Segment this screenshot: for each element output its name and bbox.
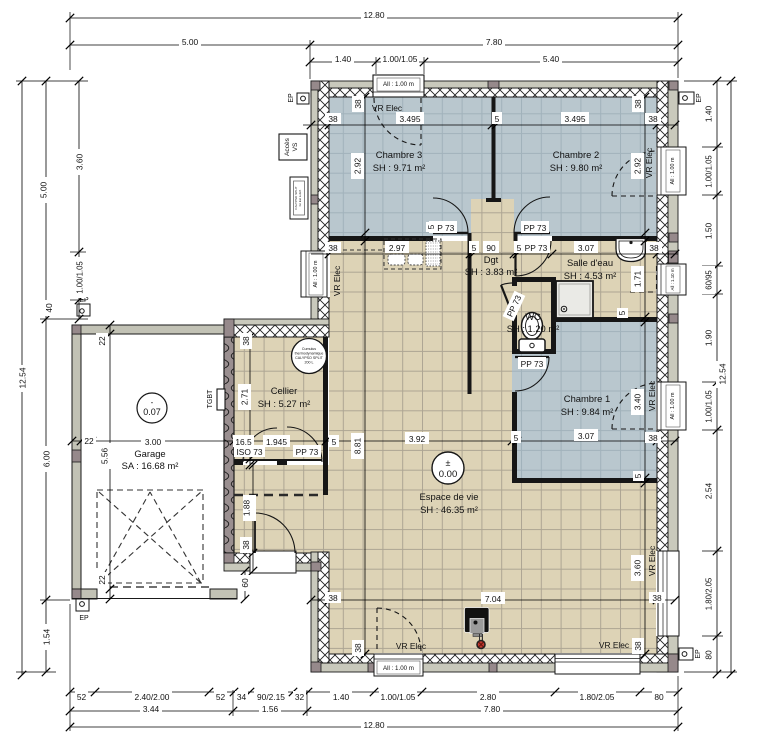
svg-text:5: 5 [332, 437, 337, 447]
svg-text:1.00/1.05: 1.00/1.05 [705, 390, 714, 423]
svg-text:1.00/1.05: 1.00/1.05 [76, 261, 85, 294]
svg-text:VR Elec: VR Elec [396, 641, 426, 651]
svg-text:60: 60 [240, 578, 250, 588]
svg-text:VR Elec: VR Elec [644, 148, 654, 178]
svg-text:5.00: 5.00 [39, 182, 49, 199]
svg-text:12.54: 12.54 [18, 367, 28, 388]
svg-text:1.945: 1.945 [266, 437, 287, 447]
svg-text:EP: EP [695, 649, 702, 659]
svg-text:Chambre 3: Chambre 3 [376, 149, 422, 160]
svg-text:CALYPSO SPLIT: CALYPSO SPLIT [295, 356, 323, 360]
svg-text:5.56: 5.56 [100, 448, 110, 465]
svg-text:5: 5 [495, 114, 500, 124]
svg-text:22: 22 [97, 575, 107, 585]
svg-text:38: 38 [353, 643, 363, 653]
svg-text:thermodynamique: thermodynamique [295, 352, 324, 356]
svg-text:1.71: 1.71 [633, 271, 643, 288]
svg-text:5: 5 [426, 224, 436, 229]
svg-text:12.54: 12.54 [718, 363, 728, 384]
svg-text:1.00/1.05: 1.00/1.05 [381, 692, 416, 702]
svg-text:All : 1.00 m: All : 1.00 m [383, 81, 414, 88]
svg-text:1.40: 1.40 [333, 692, 350, 702]
svg-text:5: 5 [617, 310, 627, 315]
svg-text:3.00: 3.00 [145, 437, 162, 447]
svg-text:VS: VS [292, 142, 299, 151]
svg-text:PP 73: PP 73 [521, 359, 544, 369]
svg-text:SH : 9.71 m²: SH : 9.71 m² [373, 162, 426, 173]
svg-text:52: 52 [216, 692, 226, 702]
svg-text:All : 1.00 m: All : 1.00 m [670, 157, 676, 184]
svg-text:3.40: 3.40 [633, 394, 643, 411]
svg-text:1.80/2.05: 1.80/2.05 [580, 692, 615, 702]
svg-text:12.80: 12.80 [364, 10, 385, 20]
svg-text:3.60: 3.60 [75, 154, 85, 171]
svg-text:38: 38 [328, 593, 338, 603]
svg-text:3.07: 3.07 [578, 431, 595, 441]
svg-text:ISO 73: ISO 73 [236, 447, 262, 457]
svg-text:5: 5 [472, 243, 477, 253]
svg-text:3.07: 3.07 [578, 243, 595, 253]
svg-text:VR Elec: VR Elec [647, 381, 657, 411]
svg-text:80: 80 [654, 692, 664, 702]
svg-text:All : 1.00 m: All : 1.00 m [383, 665, 414, 672]
svg-text:38: 38 [649, 243, 659, 253]
svg-text:WC: WC [525, 311, 541, 322]
svg-text:SH : 4.53 m²: SH : 4.53 m² [564, 270, 617, 281]
svg-text:1.56: 1.56 [262, 704, 279, 714]
svg-text:SH : 9.84 m²: SH : 9.84 m² [561, 406, 614, 417]
svg-text:2.71: 2.71 [240, 389, 250, 406]
svg-text:Espace de vie: Espace de vie [420, 491, 479, 502]
svg-text:52: 52 [77, 692, 87, 702]
svg-text:0.00: 0.00 [439, 469, 458, 480]
svg-text:Cumulus: Cumulus [302, 347, 316, 351]
svg-text:5: 5 [514, 433, 519, 443]
svg-text:12.80: 12.80 [364, 720, 385, 730]
svg-text:7.04: 7.04 [485, 594, 502, 604]
svg-text:38: 38 [648, 114, 658, 124]
svg-text:38: 38 [241, 336, 251, 346]
svg-text:22: 22 [84, 436, 94, 446]
svg-text:PP 73: PP 73 [525, 243, 548, 253]
svg-text:3.60: 3.60 [633, 560, 643, 577]
svg-text:SA : 16.68 m²: SA : 16.68 m² [122, 460, 179, 471]
svg-text:EP: EP [696, 93, 703, 103]
svg-text:1.50: 1.50 [704, 223, 714, 240]
svg-text:1.80/2.05: 1.80/2.05 [705, 577, 714, 610]
svg-text:3.495: 3.495 [565, 114, 586, 124]
svg-text:SH : 1.20 m²: SH : 1.20 m² [507, 323, 560, 334]
svg-text:0.07: 0.07 [143, 407, 161, 417]
svg-text:3.495: 3.495 [400, 114, 421, 124]
svg-text:EP: EP [288, 93, 295, 103]
svg-text:1.00/1.05: 1.00/1.05 [705, 155, 714, 188]
svg-text:5: 5 [517, 243, 522, 253]
svg-text:SH : 9.80 m²: SH : 9.80 m² [550, 162, 603, 173]
svg-text:1.40: 1.40 [704, 106, 714, 123]
svg-text:All : 1.00 m: All : 1.00 m [670, 392, 676, 419]
svg-text:EP: EP [79, 615, 89, 622]
svg-text:2.54: 2.54 [704, 483, 714, 500]
svg-text:7.80: 7.80 [484, 704, 501, 714]
svg-text:90: 90 [486, 243, 496, 253]
svg-text:SH : 5.27 m²: SH : 5.27 m² [258, 398, 311, 409]
svg-text:Gr Ext à déf.: Gr Ext à déf. [298, 189, 302, 206]
svg-text:8.81: 8.81 [353, 438, 363, 455]
svg-text:1.90: 1.90 [704, 330, 714, 347]
svg-text:2.40/2.00: 2.40/2.00 [135, 692, 170, 702]
svg-text:40: 40 [44, 303, 54, 313]
svg-text:1.40: 1.40 [335, 54, 352, 64]
svg-text:38: 38 [633, 99, 643, 109]
svg-text:Salle d'eau: Salle d'eau [567, 257, 613, 268]
svg-text:6.00: 6.00 [42, 451, 52, 468]
svg-text:PP 73: PP 73 [524, 223, 547, 233]
svg-text:Dgt: Dgt [484, 254, 499, 265]
svg-text:Chambre 1: Chambre 1 [564, 393, 610, 404]
svg-text:1.54: 1.54 [42, 629, 52, 646]
svg-text:38: 38 [328, 114, 338, 124]
svg-text:2.92: 2.92 [353, 158, 363, 175]
svg-text:5.40: 5.40 [543, 54, 560, 64]
svg-text:VR Elec: VR Elec [599, 640, 629, 650]
svg-text:±: ± [446, 458, 451, 468]
svg-text:3.44: 3.44 [143, 704, 160, 714]
svg-text:SH : 3.83 m²: SH : 3.83 m² [465, 266, 518, 277]
svg-text:38: 38 [241, 540, 251, 550]
svg-text:200 L: 200 L [305, 361, 314, 365]
svg-text:38: 38 [652, 593, 662, 603]
svg-text:TGBT: TGBT [207, 389, 214, 408]
svg-text:80: 80 [704, 650, 714, 660]
svg-text:SH : 46.35 m²: SH : 46.35 m² [420, 504, 478, 515]
svg-text:-: - [151, 398, 154, 407]
svg-text:32: 32 [295, 692, 305, 702]
svg-text:Chambre 2: Chambre 2 [553, 149, 599, 160]
svg-text:90/2.15: 90/2.15 [257, 692, 285, 702]
svg-text:All : 1.10 m: All : 1.10 m [670, 268, 675, 290]
svg-text:38: 38 [353, 99, 363, 109]
svg-text:5.00: 5.00 [182, 37, 199, 47]
svg-text:34: 34 [237, 692, 247, 702]
svg-text:VR Elec: VR Elec [372, 103, 402, 113]
svg-text:VR Elec: VR Elec [332, 266, 342, 296]
svg-text:PP 73: PP 73 [296, 447, 319, 457]
svg-text:5: 5 [633, 473, 643, 478]
svg-text:60/95: 60/95 [705, 270, 714, 290]
svg-text:2.80: 2.80 [480, 692, 497, 702]
svg-text:7.80: 7.80 [486, 37, 503, 47]
svg-text:Cellier: Cellier [271, 385, 298, 396]
svg-text:38: 38 [328, 243, 338, 253]
svg-text:Accès: Accès [284, 137, 291, 156]
svg-text:VR Elec: VR Elec [647, 546, 657, 576]
svg-text:1.00/1.05: 1.00/1.05 [383, 54, 418, 64]
svg-text:38: 38 [648, 433, 658, 443]
svg-text:2.97: 2.97 [389, 243, 406, 253]
svg-text:3.92: 3.92 [409, 434, 426, 444]
svg-text:1.88: 1.88 [242, 500, 252, 517]
svg-text:All : 1.00 m: All : 1.00 m [313, 260, 319, 287]
svg-text:2.92: 2.92 [633, 158, 643, 175]
svg-text:38: 38 [633, 641, 643, 651]
svg-text:Garage: Garage [134, 448, 165, 459]
svg-text:22: 22 [97, 336, 107, 346]
